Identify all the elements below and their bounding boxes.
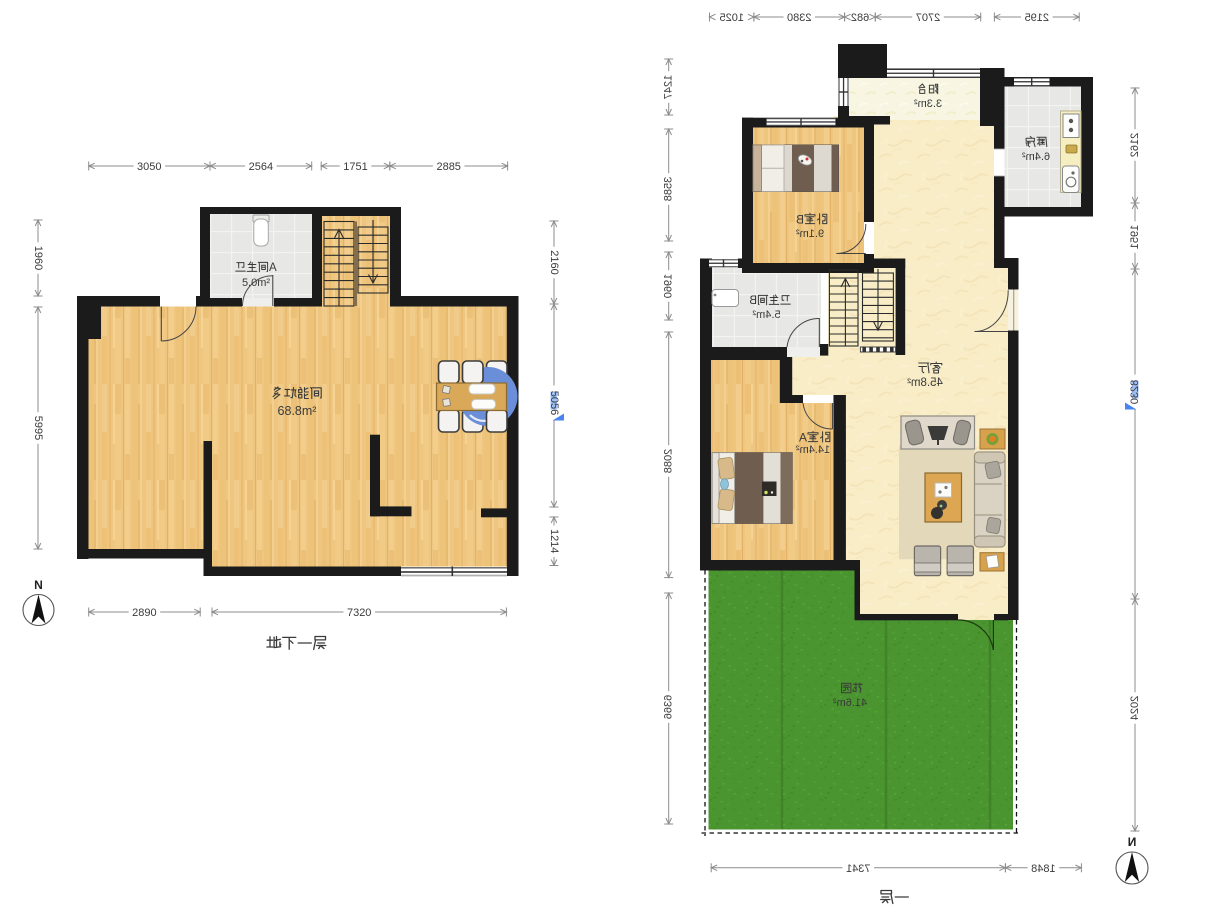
svg-text:6.4m²: 6.4m² [1022,151,1050,163]
svg-text:N: N [1128,835,1137,849]
svg-text:3050: 3050 [137,161,161,173]
svg-text:2162: 2162 [1129,133,1141,157]
svg-text:B: B [796,212,804,226]
svg-text:1214: 1214 [548,529,560,553]
svg-text:5.0m²: 5.0m² [242,277,270,289]
svg-text:1960: 1960 [32,246,44,270]
svg-text:1951: 1951 [1129,225,1141,249]
svg-text:7320: 7320 [347,607,371,619]
svg-text:14.4m²: 14.4m² [796,444,831,456]
svg-text:2088: 2088 [663,449,675,473]
svg-text:2564: 2564 [249,161,273,173]
svg-text:3.3m²: 3.3m² [914,98,942,110]
svg-text:8230: 8230 [1129,380,1141,404]
svg-text:45.8m²: 45.8m² [907,377,943,389]
svg-text:5056: 5056 [548,391,560,415]
svg-text:1247: 1247 [663,75,675,99]
svg-text:2885: 2885 [436,161,460,173]
svg-text:2380: 2380 [787,12,811,24]
svg-text:2024: 2024 [1129,696,1141,720]
svg-text:1025: 1025 [719,12,743,24]
svg-text:7341: 7341 [846,863,870,875]
svg-text:5.4m²: 5.4m² [752,309,780,321]
svg-text:A: A [269,262,277,274]
svg-text:2890: 2890 [132,607,156,619]
svg-text:B: B [749,295,757,307]
svg-text:682: 682 [851,12,869,24]
svg-text:1751: 1751 [343,161,367,173]
svg-text:2195: 2195 [1025,12,1049,24]
svg-text:2707: 2707 [916,12,940,24]
svg-text:1960: 1960 [663,274,675,298]
svg-text:N: N [34,578,43,592]
svg-text:1848: 1848 [1031,863,1055,875]
svg-text:A: A [799,430,807,444]
svg-text:6366: 6366 [663,695,675,719]
svg-text:9.1m²: 9.1m² [796,228,824,240]
svg-text:5995: 5995 [32,416,44,440]
svg-text:68.8m²: 68.8m² [278,404,317,418]
svg-text:2160: 2160 [548,250,560,274]
svg-text:3588: 3588 [663,177,675,201]
svg-text:41.6m²: 41.6m² [833,697,868,709]
